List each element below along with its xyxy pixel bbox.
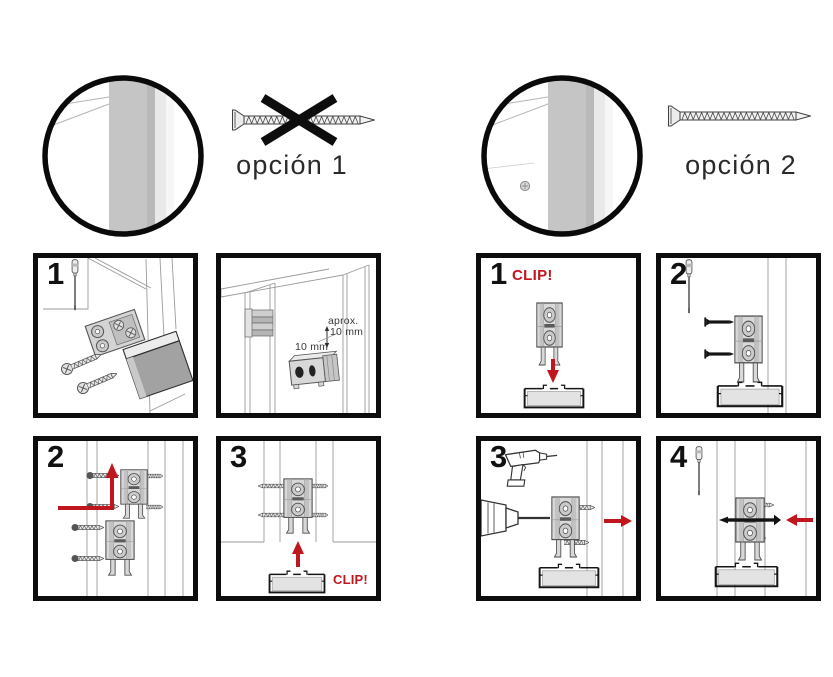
clip-connector-icon — [552, 497, 579, 557]
screw-icon — [77, 556, 104, 560]
screw-icon — [77, 525, 104, 529]
screw-tip-icon — [312, 484, 328, 488]
clip-connector-icon — [735, 316, 762, 382]
clip-connector-icon — [284, 479, 312, 533]
red-arrow-right-icon — [604, 515, 632, 527]
screw-icon — [704, 317, 734, 326]
screw-icon — [704, 349, 734, 358]
depth-label: 10 mm — [295, 342, 328, 353]
screwdriver-icon — [696, 447, 702, 496]
cabinet-lines — [87, 441, 183, 596]
cover-profile-icon — [540, 564, 599, 587]
option-1-label: opción 1 — [222, 150, 362, 180]
screw-tip-icon — [258, 513, 284, 517]
step-number: 2 — [47, 441, 64, 474]
screw-tip-icon — [312, 513, 328, 517]
drill-driving-icon — [481, 500, 550, 536]
panel-option2-step1: 1 CLIP! — [476, 253, 641, 418]
panel-option2-step2: 2 — [656, 253, 821, 418]
clip-connector-icon — [537, 303, 562, 365]
step-number: 1 — [47, 258, 64, 291]
panel-option1-step2: 2 — [33, 436, 198, 601]
step-number: 4 — [670, 441, 687, 474]
screw-tip-icon — [564, 540, 589, 544]
clip-side-view-icon — [245, 309, 273, 337]
step-number: 1 — [490, 258, 507, 291]
red-arrow-up-icon — [58, 463, 119, 508]
clip-connector-icon — [106, 521, 134, 575]
cover-profile-icon — [716, 563, 778, 586]
screw-tip-icon — [146, 505, 163, 509]
forbidden-screw-icon — [230, 94, 376, 146]
clip-iso-view-icon — [289, 351, 340, 389]
step-number: 2 — [670, 258, 687, 291]
red-arrow-left-icon — [786, 514, 813, 526]
approx-label: aprox. — [328, 316, 358, 327]
detail-circle-option2 — [479, 73, 645, 239]
screwdriver-icon — [72, 260, 78, 310]
screw-head-icon — [87, 472, 94, 479]
screw-icon — [76, 368, 119, 395]
screw-tip-icon — [146, 474, 163, 478]
instruction-sheet: opción 1 opción 2 1 — [0, 0, 833, 677]
cabinet-lines — [221, 265, 369, 413]
screw-tip-icon — [258, 484, 284, 488]
screw-head-icon — [72, 555, 79, 562]
panel-option2-step4: 4 — [656, 436, 821, 601]
screw-head-icon — [520, 181, 529, 190]
allowed-screw-icon — [666, 103, 812, 129]
panel-option1-detail: aprox. 10 mm 10 mm — [216, 253, 381, 418]
screw-head-icon — [72, 524, 79, 531]
step-number: 3 — [490, 441, 507, 474]
clip-action-label: CLIP! — [512, 267, 553, 284]
cover-profile-icon — [718, 382, 782, 406]
step-number: 3 — [230, 441, 247, 474]
option-2-label: opción 2 — [671, 150, 811, 180]
panel-option1-step1: 1 — [33, 253, 198, 418]
panel-option1-step3: 3 CLIP! — [216, 436, 381, 601]
approx-value: 10 mm — [330, 327, 363, 338]
screw-icon — [669, 106, 811, 126]
cover-profile-icon — [525, 385, 584, 407]
cover-profile-icon — [270, 571, 325, 592]
clip-connector-icon — [121, 470, 147, 518]
drill-icon — [506, 450, 558, 486]
panel-option2-step3: 3 — [476, 436, 641, 601]
clip-action-label: CLIP! — [333, 572, 368, 587]
red-arrow-up-icon — [292, 541, 304, 567]
clip-connector-icon — [736, 498, 764, 560]
detail-circle-option1 — [40, 73, 206, 239]
